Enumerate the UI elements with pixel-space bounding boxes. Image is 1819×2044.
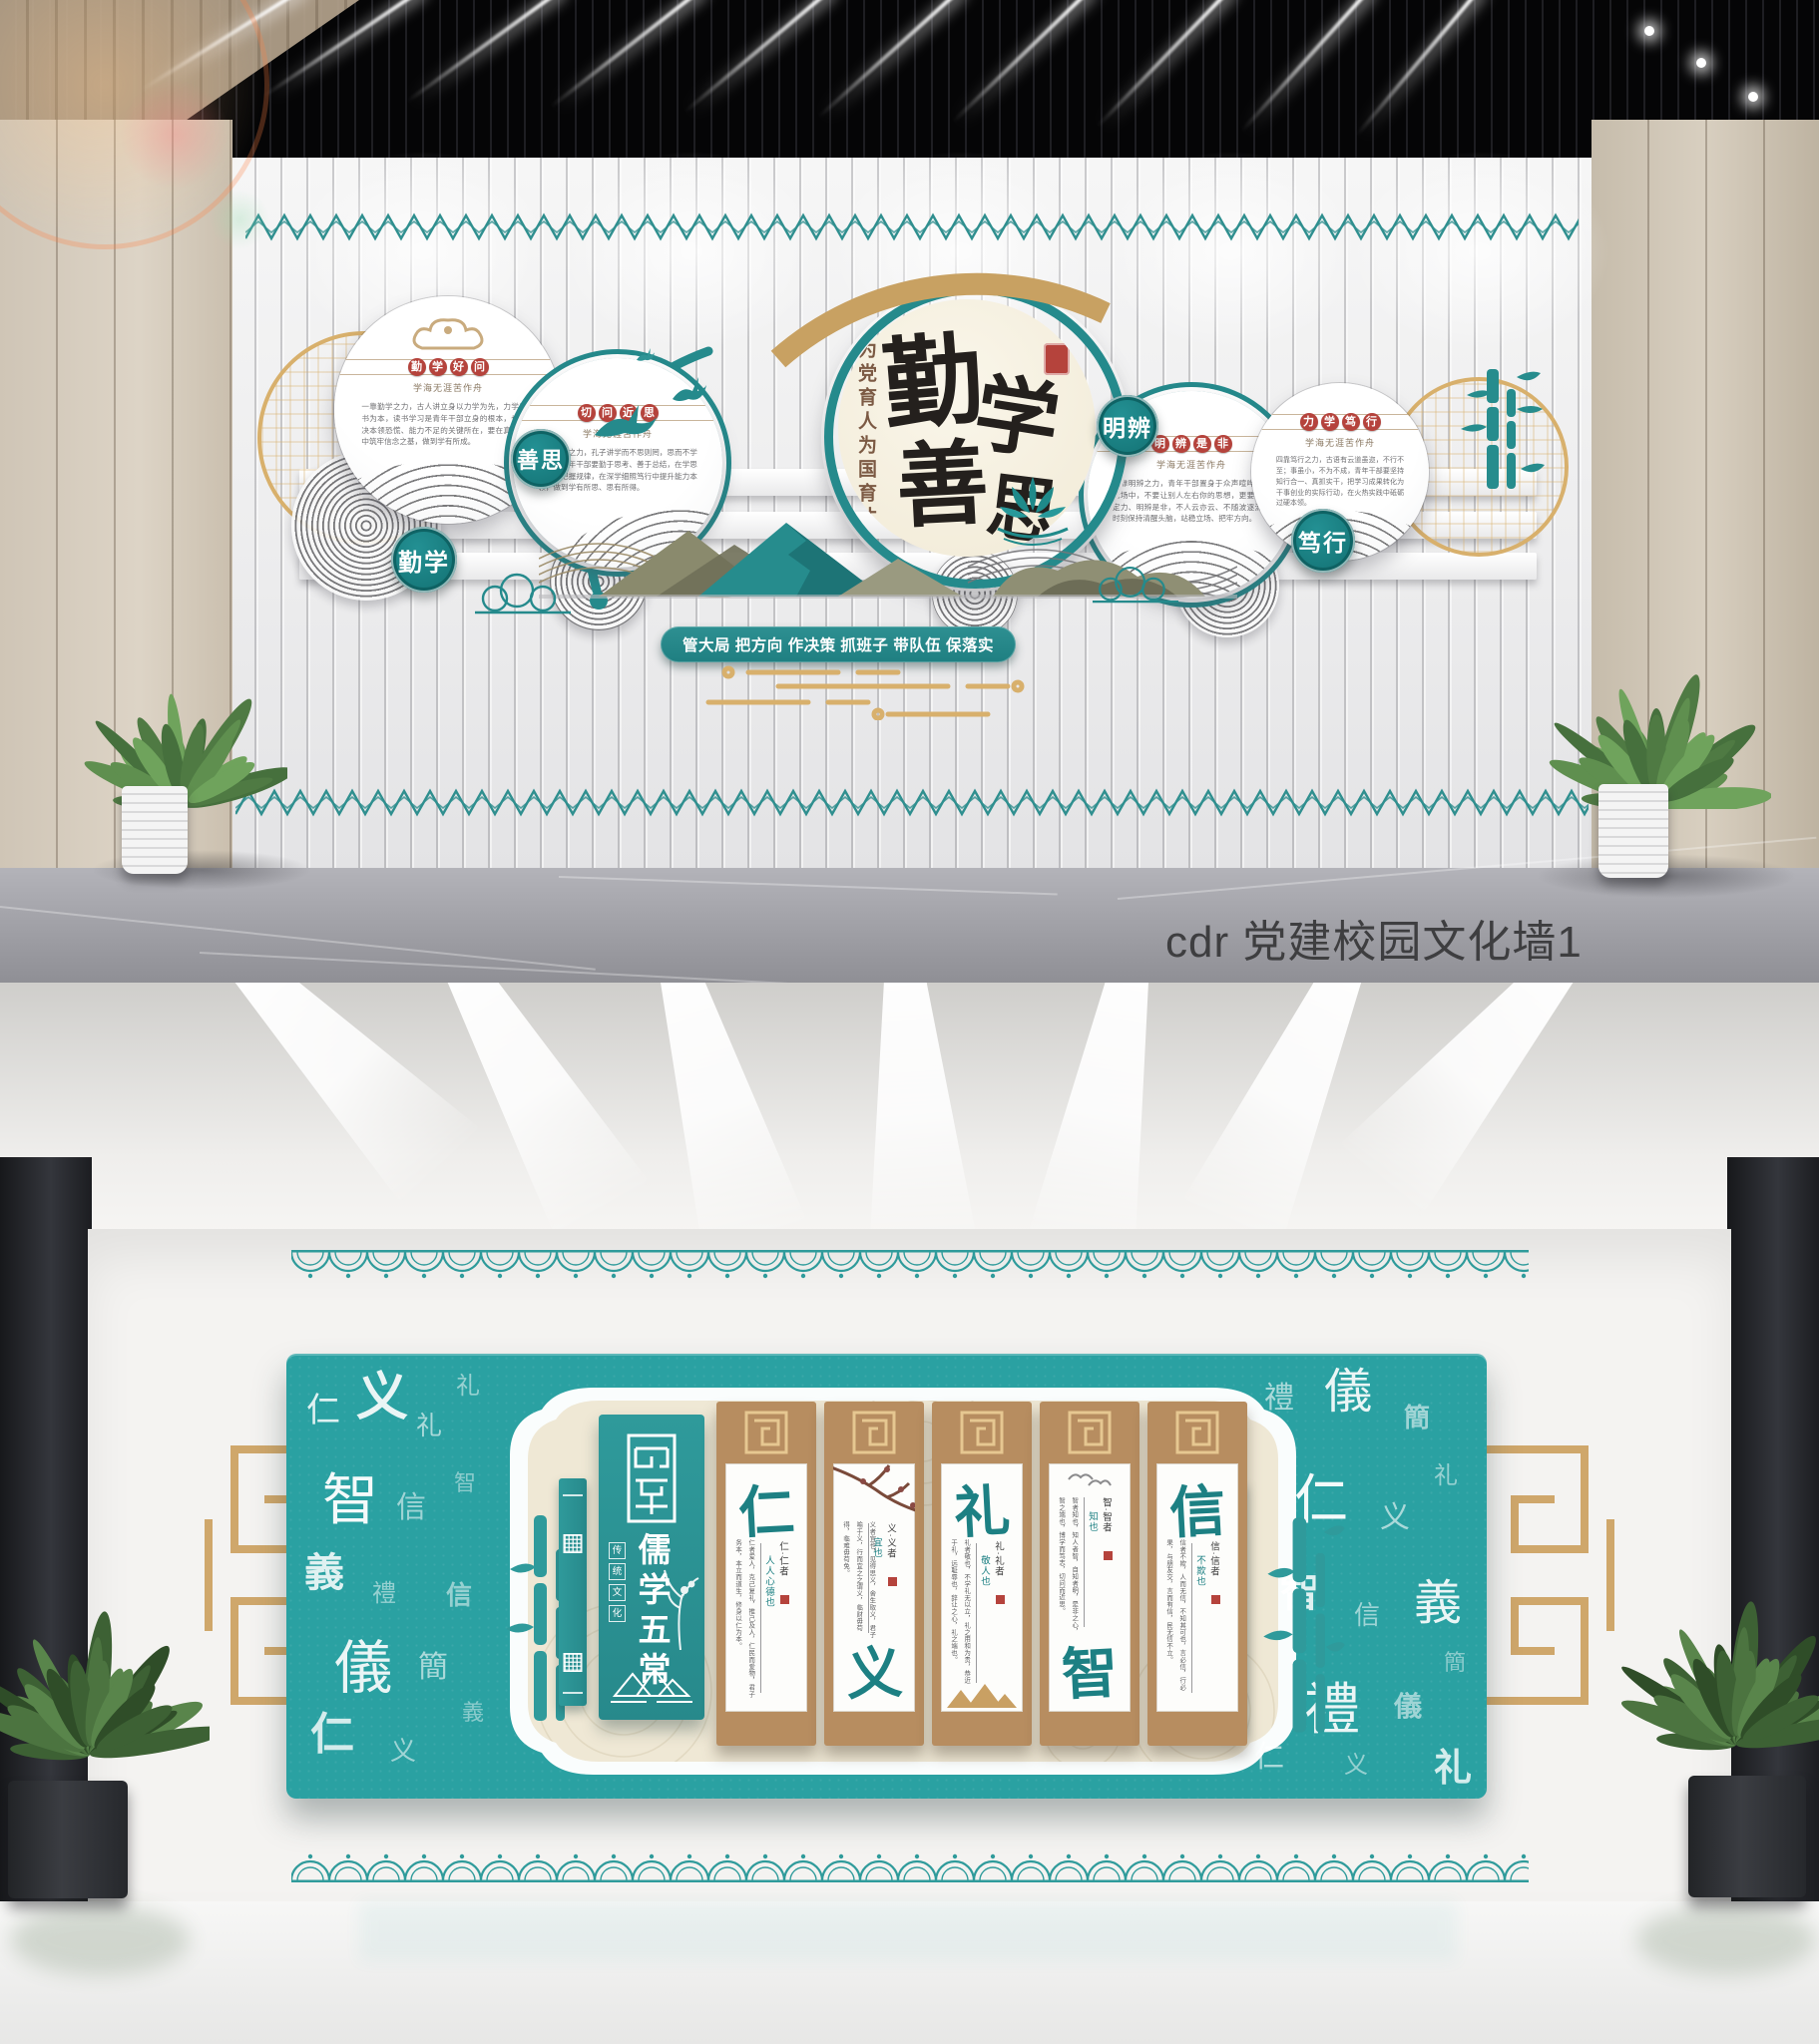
scroll-note: 仁·仁者 bbox=[775, 1541, 789, 1577]
scroll-note2: 不欺也 bbox=[1192, 1555, 1206, 1587]
scroll-note2: 知也 bbox=[1085, 1511, 1099, 1532]
scroll-panel-xin: 信 信·信者 不欺也 信者不欺，人而无信，不知其可也，言必信，行必果，与朋友交，… bbox=[1147, 1402, 1247, 1746]
scatter-char: 仁 bbox=[310, 1713, 354, 1757]
meander-icon bbox=[1175, 1411, 1219, 1454]
seal-glyph-icon bbox=[626, 1432, 678, 1524]
panel-body-text: 四靠笃行之力，古语有云道虽迩，不行不至；事虽小，不为不成，青年干部要坚持知行合一… bbox=[1276, 456, 1404, 510]
badge-label: 明辨 bbox=[1103, 409, 1152, 443]
badge-label: 善思 bbox=[517, 443, 565, 475]
wood-wall-right bbox=[1592, 120, 1819, 880]
lens-flare bbox=[0, 0, 269, 249]
scatter-char: 信 bbox=[396, 1493, 426, 1523]
plant-pot bbox=[1598, 784, 1668, 878]
scatter-char: 簡 bbox=[1404, 1406, 1430, 1431]
scatter-char: 簡 bbox=[1444, 1653, 1466, 1675]
panel-title: 勤学好问 bbox=[334, 358, 562, 376]
plant-pot bbox=[122, 786, 188, 874]
scroll-body: 仁者爱人，克己复礼，推己及人，仁民而爱物，君子务本，本立而道生，修身以仁为本。 bbox=[731, 1539, 757, 1699]
marble-column-right bbox=[1727, 1157, 1819, 1901]
badge-label: 笃行 bbox=[1298, 524, 1348, 558]
scroll-body: 义者宜也，见得思义，舍生取义，君子喻于义，行而宜之之谓义，临财毋苟得，临难毋苟免… bbox=[839, 1521, 878, 1641]
slogan-banner: 管大局 把方向 作决策 抓班子 带队伍 保落实 bbox=[661, 626, 1016, 662]
badge-shansi: 善思 bbox=[511, 429, 571, 489]
scatter-char: 礼 bbox=[416, 1414, 442, 1439]
panel-body-text: 三靠明辨之力，青年干部置身于众声喧哗的舆论场中，不要让别人左右你的思想，更要保持… bbox=[1113, 478, 1270, 525]
ceiling-black-slats bbox=[0, 0, 1819, 168]
scatter-char: 義 bbox=[1414, 1579, 1462, 1627]
scatter-char: 礼 bbox=[1434, 1749, 1472, 1787]
scroll-big-char: 仁 bbox=[736, 1466, 796, 1550]
panel-title: 切问近思 bbox=[513, 404, 722, 422]
scatter-char: 义 bbox=[1344, 1753, 1368, 1777]
meander-icon bbox=[744, 1411, 788, 1454]
scatter-char: 智 bbox=[322, 1473, 378, 1529]
calligraphy-char: 善 bbox=[893, 409, 992, 547]
badge-qinxue: 勤学 bbox=[391, 527, 457, 593]
spotlight-dot bbox=[1644, 26, 1654, 36]
ceiling-light-strips bbox=[0, 0, 1819, 170]
spotlight-dot bbox=[1696, 58, 1706, 68]
scroll-body: 信者不欺，人而无信，不知其可也，言必信，行必果，与朋友交，言而有信，民无信不立。 bbox=[1162, 1539, 1188, 1699]
scroll-panel-zhi: 智·智者 知也 智者知也，知人者智，自知者明，是非之心，智之端也，博学而笃志，切… bbox=[1040, 1402, 1139, 1746]
panel-title: 力学笃行 bbox=[1251, 413, 1429, 431]
scatter-char: 信 bbox=[446, 1583, 472, 1609]
scatter-char: 仁 bbox=[1294, 1473, 1348, 1527]
meander-icon bbox=[852, 1411, 896, 1454]
center-emblem: 勤 学 善 思 为党育人为国育才 bbox=[838, 299, 1096, 557]
scatter-char: 智 bbox=[1280, 1573, 1320, 1613]
scene-bottom-wall: 仁义礼智信義禮儀簡仁义礼智信義禮儀簡仁义礼智信義禮儀簡仁义礼 bbox=[0, 983, 1819, 2044]
scroll-body: 礼者敬也，不学礼无以立，礼之用和为贵，恭近于礼，远耻辱也，辞让之心，礼之端也。 bbox=[947, 1539, 973, 1689]
birds-icon bbox=[1067, 1469, 1113, 1489]
plum-branch-icon bbox=[833, 1463, 915, 1517]
caption-label: cdr 党建校园文化墙1 bbox=[1165, 918, 1583, 967]
panel-body-text: 一靠勤学之力，古人讲立身以力学为先，力学以读书为本，读书学习是青年干部立身的根本… bbox=[361, 401, 534, 448]
scroll-big-char: 礼 bbox=[952, 1466, 1012, 1550]
scatter-char: 禮 bbox=[372, 1581, 396, 1605]
spotlight-dot bbox=[1748, 92, 1758, 102]
title-panel-ruxuewuchang: 儒学五常 传统文化 bbox=[599, 1415, 704, 1720]
design-showcase: 勤学好问 学海无涯苦作舟 一靠勤学之力，古人讲立身以力学为先，力学以读书为本，读… bbox=[0, 0, 1819, 2044]
scatter-char: 義 bbox=[304, 1553, 344, 1593]
calligraphy-char: 思 bbox=[982, 447, 1066, 557]
scatter-char: 礼 bbox=[1434, 1463, 1458, 1487]
scatter-char: 礼 bbox=[456, 1374, 480, 1398]
scroll-body: 智者知也，知人者智，自知者明，是非之心，智之端也，博学而笃志，切问而近思。 bbox=[1055, 1497, 1081, 1637]
scene-top-wall: 勤学好问 学海无涯苦作舟 一靠勤学之力，古人讲立身以力学为先，力学以读书为本，读… bbox=[0, 0, 1819, 983]
scroll-note: 义·义者 bbox=[883, 1523, 897, 1559]
scatter-char: 义 bbox=[390, 1739, 416, 1765]
scroll-note: 礼·礼者 bbox=[991, 1541, 1005, 1577]
panel-subtitle: 学海无涯苦作舟 bbox=[1251, 436, 1429, 449]
panel-subtitle: 学海无涯苦作舟 bbox=[334, 381, 562, 394]
scatter-char: 仁 bbox=[306, 1394, 340, 1428]
scroll-big-char: 义 bbox=[844, 1628, 904, 1712]
scroll-note2: 敬人也 bbox=[977, 1555, 991, 1587]
scroll-big-char: 信 bbox=[1167, 1466, 1227, 1550]
lens-flare bbox=[120, 80, 229, 190]
scroll-note2: 人人心德也 bbox=[761, 1555, 775, 1608]
vertical-slogan: 为党育人为国育才 bbox=[852, 339, 879, 531]
caption-text: cdr 党建校园文化墙1 bbox=[1165, 906, 1583, 970]
scatter-char: 儀 bbox=[1324, 1368, 1372, 1416]
badge-duxing: 笃行 bbox=[1291, 509, 1355, 573]
ceiling-wood-corner bbox=[0, 0, 359, 150]
scatter-char: 儀 bbox=[334, 1639, 392, 1697]
ceiling-light-panels bbox=[0, 983, 1819, 1232]
slogan-banner-text: 管大局 把方向 作决策 抓班子 带队伍 保落实 bbox=[682, 633, 994, 655]
scatter-char: 禮 bbox=[1264, 1384, 1294, 1414]
meander-icon bbox=[1068, 1411, 1112, 1454]
meander-icon bbox=[960, 1411, 1004, 1454]
ruyi-cloud-icon bbox=[408, 314, 488, 354]
scatter-char: 信 bbox=[1354, 1603, 1380, 1629]
marble-column-left bbox=[0, 1157, 92, 1901]
scroll-big-char: 智 bbox=[1060, 1628, 1120, 1712]
scroll-panel-ren: 仁 仁·仁者 人人心德也 仁者爱人，克己复礼，推己及人，仁民而爱物，君子务本，本… bbox=[716, 1402, 816, 1746]
badge-label: 勤学 bbox=[398, 543, 450, 578]
scatter-char: 簡 bbox=[418, 1653, 448, 1683]
vertical-title: 儒学五常 bbox=[628, 1532, 676, 1692]
subtitle-boxes: 传统文化 bbox=[609, 1542, 626, 1626]
badge-mingbian: 明辨 bbox=[1097, 395, 1158, 457]
floor-white bbox=[0, 1901, 1819, 2044]
scatter-char: 义 bbox=[356, 1372, 408, 1424]
scatter-char: 儀 bbox=[1394, 1693, 1422, 1721]
scatter-char: 仁 bbox=[1254, 1743, 1284, 1773]
scroll-panel-li: 礼 礼·礼者 敬人也 礼者敬也，不学礼无以立，礼之用和为贵，恭近于礼，远耻辱也，… bbox=[932, 1402, 1032, 1746]
wood-wall-left bbox=[0, 120, 232, 880]
scroll-note: 智·智者 bbox=[1099, 1497, 1113, 1533]
scroll-note: 信·信者 bbox=[1206, 1541, 1220, 1577]
scatter-char: 義 bbox=[462, 1703, 484, 1725]
scatter-char: 智 bbox=[454, 1473, 476, 1495]
scatter-char: 禮 bbox=[1304, 1683, 1360, 1739]
scroll-panel-yi: 义·义者 宜也 义者宜也，见得思义，舍生取义，君子喻于义，行而宜之之谓义，临财毋… bbox=[824, 1402, 924, 1746]
scatter-char: 义 bbox=[1380, 1503, 1410, 1533]
